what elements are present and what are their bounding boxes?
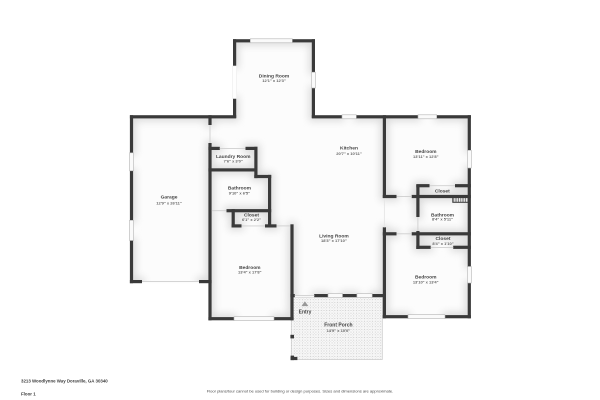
svg-text:14'9" x 10'0": 14'9" x 10'0" <box>327 328 351 333</box>
svg-text:13'4" x 17'8": 13'4" x 17'8" <box>238 270 262 275</box>
svg-text:9'10" x 6'5": 9'10" x 6'5" <box>229 190 250 195</box>
svg-text:Floor 1: Floor 1 <box>21 391 36 396</box>
svg-text:20'7" x 10'11": 20'7" x 10'11" <box>336 151 362 156</box>
svg-text:13'11" x 12'8": 13'11" x 12'8" <box>413 154 439 159</box>
svg-text:18'3" x 17'10": 18'3" x 17'10" <box>321 238 347 243</box>
svg-text:12'1" x 12'3": 12'1" x 12'3" <box>262 78 286 83</box>
svg-text:Floor plans/tour cannot be use: Floor plans/tour cannot be used for buil… <box>207 388 394 393</box>
svg-text:8'4" x 1'10": 8'4" x 1'10" <box>432 241 453 246</box>
svg-text:Closet: Closet <box>435 189 450 195</box>
svg-text:12'9" x 26'11": 12'9" x 26'11" <box>156 200 182 205</box>
svg-text:6'1" x 2'2": 6'1" x 2'2" <box>242 217 261 222</box>
svg-text:Entry: Entry <box>299 310 312 316</box>
svg-text:3213 Woodlynne Way Doraville,: 3213 Woodlynne Way Doraville, GA 30340 <box>21 379 108 384</box>
svg-text:8'4" x 5'11": 8'4" x 5'11" <box>432 217 453 222</box>
svg-text:13'10" x 13'4": 13'10" x 13'4" <box>413 280 439 285</box>
svg-text:7'6" x 3'0": 7'6" x 3'0" <box>224 159 243 164</box>
